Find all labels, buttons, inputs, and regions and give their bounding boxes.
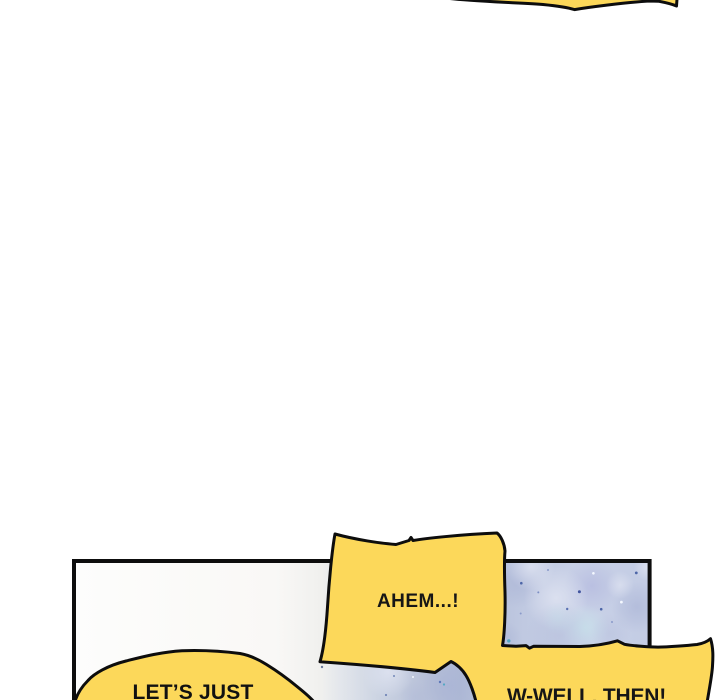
svg-text:LET’S JUST: LET’S JUST xyxy=(132,681,253,700)
svg-text:AHEM...!: AHEM...! xyxy=(377,591,459,612)
svg-text:W-WELL, THEN!: W-WELL, THEN! xyxy=(507,685,666,700)
